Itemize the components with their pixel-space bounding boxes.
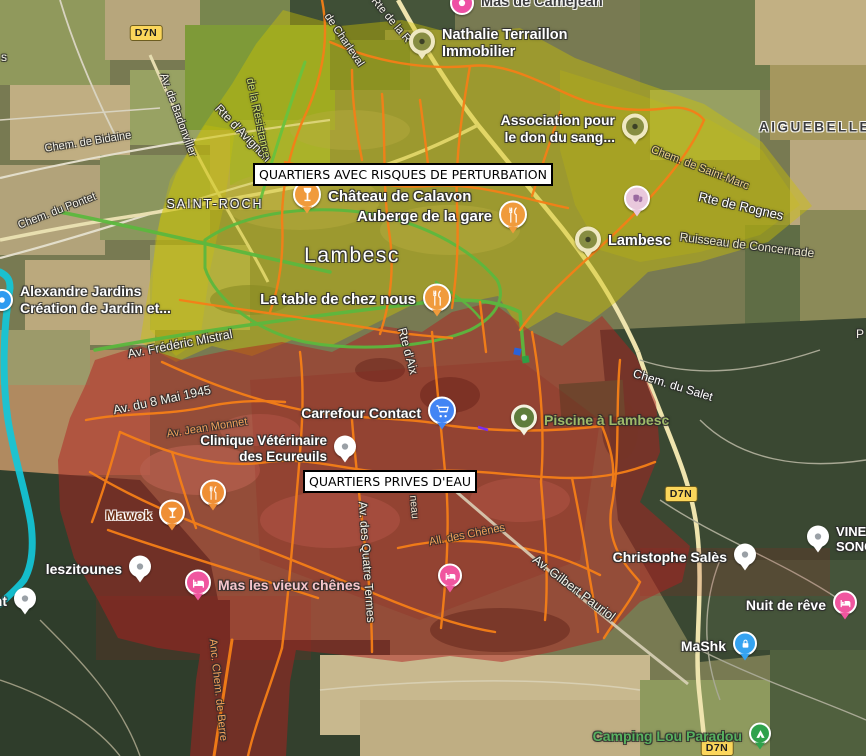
marker-tail — [437, 423, 447, 430]
dot-white-icon — [450, 0, 474, 15]
clinique-veterinaire-des-ecureuils-marker[interactable] — [334, 436, 356, 463]
bed-icon — [438, 564, 462, 588]
marker-tail — [417, 53, 427, 60]
route-badge-d7n: D7N — [665, 486, 698, 502]
nuit-de-reve-marker[interactable] — [833, 591, 857, 620]
zone-annotation-label: QUARTIERS AVEC RISQUES DE PERTURBATION — [253, 163, 553, 186]
lodging-poi-center-marker[interactable] — [438, 564, 462, 593]
association-don-du-sang-marker[interactable] — [622, 114, 648, 145]
la-table-de-chez-nous-label[interactable]: La table de chez nous — [260, 291, 416, 308]
carrefour-contact-marker[interactable] — [428, 397, 456, 430]
poi-label-line: Clinique Vétérinaire — [200, 433, 327, 449]
marker-tail — [508, 227, 518, 234]
green-poi-icon — [409, 29, 435, 55]
restaurant-icon — [423, 284, 451, 312]
poi-label-line: Mawok — [105, 507, 152, 523]
lock-icon — [733, 632, 757, 656]
poi-label-line: Carrefour Contact — [301, 405, 421, 421]
marker-tail — [740, 564, 750, 571]
camping-lou-paradou-marker[interactable] — [749, 723, 771, 750]
restaurant-icon — [200, 480, 226, 506]
poi-label-line: MaShk — [681, 638, 726, 654]
nathalie-terraillon-immobilier-marker[interactable] — [409, 29, 435, 60]
poi-label-line: Alexandre Jardins — [20, 283, 171, 299]
mas-de-camejean-marker[interactable] — [450, 0, 474, 15]
restaurant-icon — [499, 201, 527, 229]
mawok-label[interactable]: Mawok — [105, 507, 152, 523]
pool-icon — [511, 405, 537, 431]
poi-label-line: SONG... — [836, 539, 866, 554]
association-don-du-sang-label[interactable]: Association pourle don du sang... — [501, 112, 615, 144]
map-canvas[interactable]: Chem. de BidaineChem. du PontetAv. de Ba… — [0, 0, 866, 756]
marker-tail — [193, 594, 203, 601]
poi-label-line: des Ecureuils — [200, 449, 327, 465]
mashk-marker[interactable] — [733, 632, 757, 661]
poi-label-line: Mas les vieux chênes — [218, 577, 360, 593]
poi-label-line: Camping Lou Paradou — [593, 728, 742, 744]
bed-icon — [185, 570, 211, 596]
poi-label-line: Mas de Camejean — [481, 0, 603, 11]
mashk-label[interactable]: MaShk — [681, 638, 726, 654]
poi-label-line: Immobilier — [442, 44, 567, 61]
christophe-sales-marker[interactable] — [734, 544, 756, 571]
poi-label-line: La table de chez nous — [260, 291, 416, 308]
chateau-de-calavon-label[interactable]: Château de Calavon — [328, 188, 471, 205]
poi-label-line: leszitounes — [46, 561, 122, 577]
marker-tail — [813, 546, 823, 553]
marker-tail — [445, 586, 455, 593]
restaurant-poi-west-marker[interactable] — [200, 480, 226, 511]
route-badge-d7n: D7N — [130, 25, 163, 41]
poi-label-line: VINET — [836, 524, 866, 539]
poi-label-line: Lambesc — [608, 233, 671, 250]
cart-icon — [428, 397, 456, 425]
alexandre-jardins-marker[interactable] — [0, 289, 13, 311]
dot-pin-icon — [807, 526, 829, 548]
auberge-de-la-gare-marker[interactable] — [499, 201, 527, 234]
piscine-a-lambesc-label[interactable]: Piscine à Lambesc — [544, 412, 669, 428]
bed-icon — [833, 591, 857, 615]
poi-label-line: Piscine à Lambesc — [544, 412, 669, 428]
museum-theatre-poi-marker[interactable] — [624, 186, 650, 217]
poi-label-line: Nuit de rêve — [746, 597, 826, 613]
poi-label-line: Château de Calavon — [328, 188, 471, 205]
poi-nt-fragment-marker[interactable] — [14, 588, 36, 615]
green-poi-icon — [575, 227, 601, 253]
dot-pin-icon — [334, 436, 356, 458]
lambesc-poi-marker[interactable] — [575, 227, 601, 258]
vinet-song-label[interactable]: VINETSONG... — [836, 524, 866, 554]
mas-les-vieux-chenes-label[interactable]: Mas les vieux chênes — [218, 577, 360, 593]
dot-pin-icon — [14, 588, 36, 610]
leszitounes-marker[interactable] — [129, 556, 151, 583]
marker-tail — [630, 138, 640, 145]
carrefour-contact-label[interactable]: Carrefour Contact — [301, 405, 421, 421]
leszitounes-label[interactable]: leszitounes — [46, 561, 122, 577]
dot-white-icon — [0, 289, 13, 311]
zone-annotation-label: QUARTIERS PRIVES D'EAU — [303, 470, 477, 493]
poi-nt-fragment-label[interactable]: nt — [0, 593, 7, 609]
vinet-song-marker[interactable] — [807, 526, 829, 553]
marker-tail — [740, 654, 750, 661]
mawok-marker[interactable] — [159, 500, 185, 531]
marker-tail — [208, 504, 218, 511]
tent-icon — [749, 723, 771, 745]
masks-icon — [624, 186, 650, 212]
christophe-sales-label[interactable]: Christophe Salès — [613, 549, 727, 565]
dot-pin-icon — [129, 556, 151, 578]
marker-tail — [302, 207, 312, 214]
marker-tail — [755, 743, 765, 750]
poi-label-line: nt — [0, 593, 7, 609]
marker-tail — [632, 210, 642, 217]
marker-tail — [840, 613, 850, 620]
nathalie-terraillon-immobilier-label[interactable]: Nathalie TerraillonImmobilier — [442, 27, 567, 61]
marker-tail — [583, 251, 593, 258]
poi-label-line: Nathalie Terraillon — [442, 27, 567, 44]
la-table-de-chez-nous-marker[interactable] — [423, 284, 451, 317]
marker-tail — [432, 310, 442, 317]
cocktail-icon — [159, 500, 185, 526]
alexandre-jardins-label[interactable]: Alexandre JardinsCréation de Jardin et..… — [20, 283, 171, 315]
dot-pin-icon — [734, 544, 756, 566]
nuit-de-reve-label[interactable]: Nuit de rêve — [746, 597, 826, 613]
marker-tail — [135, 576, 145, 583]
poi-label-line: Christophe Salès — [613, 549, 727, 565]
green-poi-icon — [622, 114, 648, 140]
camping-lou-paradou-label[interactable]: Camping Lou Paradou — [593, 728, 742, 744]
clinique-veterinaire-des-ecureuils-label[interactable]: Clinique Vétérinairedes Ecureuils — [200, 433, 327, 464]
mas-de-camejean-label[interactable]: Mas de Camejean — [481, 0, 603, 11]
lambesc-poi-label[interactable]: Lambesc — [608, 233, 671, 250]
poi-label-line: le don du sang... — [501, 129, 615, 145]
marker-tail — [519, 429, 529, 436]
poi-label-line: Création de Jardin et... — [20, 300, 171, 316]
marker-tail — [340, 456, 350, 463]
auberge-de-la-gare-label[interactable]: Auberge de la gare — [357, 208, 492, 225]
marker-tail — [20, 608, 30, 615]
poi-label-line: Auberge de la gare — [357, 208, 492, 225]
marker-tail — [167, 524, 177, 531]
poi-label-line: Association pour — [501, 112, 615, 128]
mas-les-vieux-chenes-marker[interactable] — [185, 570, 211, 601]
piscine-a-lambesc-marker[interactable] — [511, 405, 537, 436]
